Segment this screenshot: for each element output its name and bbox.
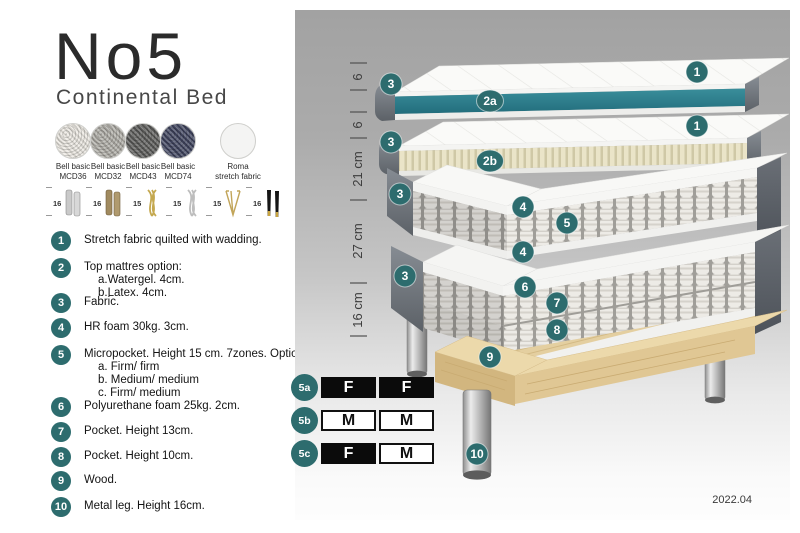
firmness-cell: F	[379, 377, 434, 398]
feature-number-badge: 5	[51, 345, 71, 365]
feature-subtext: b. Medium/ medium	[98, 374, 307, 387]
feature-item-10: 10 Metal leg. Height 16cm.	[51, 497, 205, 517]
swatch-code: stretch fabric	[215, 172, 261, 181]
svg-text:10: 10	[470, 447, 484, 461]
feature-text: Pocket. Height 13cm.	[84, 425, 193, 438]
feature-item-6: 6 Polyurethane foam 25kg. 2cm.	[51, 397, 240, 417]
svg-text:4: 4	[520, 245, 527, 259]
callout-9: 9	[479, 346, 501, 368]
feature-text: Fabric.	[84, 296, 119, 309]
callout-10: 10	[466, 443, 488, 465]
leg-options-row: 16 16 15 15 15 16	[46, 184, 284, 222]
callout-2b: 2b	[477, 150, 504, 172]
svg-text:5: 5	[564, 216, 571, 230]
svg-text:3: 3	[402, 269, 409, 283]
firmness-cell: F	[321, 377, 376, 398]
feature-text: Metal leg. Height 16cm.	[84, 500, 205, 513]
feature-text: Stretch fabric quilted with wadding.	[84, 234, 262, 247]
feature-number-badge: 3	[51, 293, 71, 313]
diagram-panel: 6 6 21 cm 27 cm 16 cm	[295, 10, 790, 520]
callout-1-topper1: 1	[686, 61, 708, 83]
leg-icon-twist-gold	[143, 188, 163, 218]
feature-number-badge: 6	[51, 397, 71, 417]
callout-4-upper: 4	[512, 196, 534, 218]
svg-text:3: 3	[397, 187, 404, 201]
page: { "header": {"title": "No5", "subtitle":…	[0, 0, 800, 533]
leg-option: 15	[166, 184, 204, 222]
svg-text:7: 7	[554, 296, 561, 310]
swatch-name: Roma	[227, 162, 248, 171]
feature-item-3: 3 Fabric.	[51, 293, 119, 313]
page-subtitle: Continental Bed	[56, 86, 228, 110]
firmness-cell: M	[321, 410, 376, 431]
feature-item-9: 9 Wood.	[51, 471, 117, 491]
feature-subtext: a. Firm/ firm	[98, 361, 307, 374]
firmness-row-5b: 5b M M	[291, 407, 434, 434]
callout-2a: 2a	[477, 90, 504, 112]
fabric-swatch: Romastretch fabric	[210, 123, 266, 181]
callout-4-lower: 4	[512, 241, 534, 263]
firmness-cell: M	[379, 443, 434, 464]
callout-5: 5	[556, 212, 578, 234]
feature-item-4: 4 HR foam 30kg. 3cm.	[51, 318, 189, 338]
feature-text: Wood.	[84, 474, 117, 487]
callout-3-mattress: 3	[389, 183, 411, 205]
feature-subtext: a.Watergel. 4cm.	[98, 274, 185, 287]
leg-option: 16	[46, 184, 84, 222]
swatch-code: MCD74	[164, 172, 191, 181]
feature-item-1: 1 Stretch fabric quilted with wadding.	[51, 231, 262, 251]
fabric-swatch-disc	[160, 123, 196, 159]
feature-item-7: 7 Pocket. Height 13cm.	[51, 422, 193, 442]
firmness-row-5a: 5a F F	[291, 374, 434, 401]
leg-icon-cylinder-bronze	[103, 188, 123, 218]
leg-height-label: 16	[93, 199, 101, 208]
feature-number-badge: 8	[51, 447, 71, 467]
firmness-row-5c: 5c F M	[291, 440, 434, 467]
feature-item-8: 8 Pocket. Height 10cm.	[51, 447, 193, 467]
leg-icon-hairpin-gold	[223, 188, 243, 218]
svg-text:3: 3	[388, 135, 395, 149]
svg-text:1: 1	[694, 65, 701, 79]
firmness-row-badge: 5b	[291, 407, 318, 434]
feature-number-badge: 1	[51, 231, 71, 251]
feature-number-badge: 4	[51, 318, 71, 338]
callout-3-box: 3	[394, 265, 416, 287]
feature-text: HR foam 30kg. 3cm.	[84, 321, 189, 334]
svg-text:2a: 2a	[483, 94, 497, 108]
dim-label-16cm: 16 cm	[350, 292, 365, 327]
leg-option: 15	[126, 184, 164, 222]
feature-number-badge: 7	[51, 422, 71, 442]
fabric-swatch-disc	[220, 123, 256, 159]
feature-text: Micropocket. Height 15 cm. 7zones. Optio…	[84, 348, 307, 361]
leg-option: 16	[86, 184, 124, 222]
svg-text:4: 4	[520, 200, 527, 214]
svg-text:9: 9	[487, 350, 494, 364]
firmness-cell: M	[379, 410, 434, 431]
leg-height-label: 15	[173, 199, 181, 208]
layer-top-mattress-2a	[375, 58, 789, 121]
callout-8: 8	[546, 319, 568, 341]
leg-height-label: 15	[213, 199, 221, 208]
svg-text:8: 8	[554, 323, 561, 337]
callout-3-topper2: 3	[380, 131, 402, 153]
page-title: No5	[54, 18, 187, 94]
feature-text: Pocket. Height 10cm.	[84, 450, 193, 463]
firmness-row-badge: 5c	[291, 440, 318, 467]
leg-height-label: 16	[53, 199, 61, 208]
feature-number-badge: 2	[51, 258, 71, 278]
feature-text: Polyurethane foam 25kg. 2cm.	[84, 400, 240, 413]
leg-option: 15	[206, 184, 244, 222]
svg-text:1: 1	[694, 119, 701, 133]
dim-label-6-top: 6	[350, 73, 365, 80]
swatch-name: Bell basic	[161, 162, 195, 171]
feature-text: Top mattres option:	[84, 261, 185, 274]
leg-option: 16	[246, 184, 284, 222]
dimension-ruler: 6 6 21 cm 27 cm 16 cm	[350, 63, 367, 336]
callout-1-topper2: 1	[686, 115, 708, 137]
dim-label-6-mid: 6	[350, 121, 365, 128]
callout-6: 6	[514, 276, 536, 298]
leg-icon-twist-silver	[183, 188, 203, 218]
feature-item-5: 5 Micropocket. Height 15 cm. 7zones. Opt…	[51, 345, 307, 400]
callout-7: 7	[546, 292, 568, 314]
svg-text:3: 3	[388, 77, 395, 91]
version-date: 2022.04	[712, 494, 752, 506]
front-leg	[463, 390, 491, 480]
dim-label-27cm: 27 cm	[350, 223, 365, 258]
leg-height-label: 15	[133, 199, 141, 208]
feature-number-badge: 10	[51, 497, 71, 517]
feature-number-badge: 9	[51, 471, 71, 491]
leg-icon-tapered-black-gold	[263, 188, 283, 218]
svg-text:2b: 2b	[483, 154, 497, 168]
leg-height-label: 16	[253, 199, 261, 208]
callout-3-topper1: 3	[380, 73, 402, 95]
svg-text:6: 6	[522, 280, 529, 294]
firmness-row-badge: 5a	[291, 374, 318, 401]
fabric-swatch: Bell basicMCD74	[150, 123, 206, 181]
leg-icon-cylinder-silver	[63, 188, 83, 218]
dim-label-21cm: 21 cm	[350, 151, 365, 186]
firmness-cell: F	[321, 443, 376, 464]
